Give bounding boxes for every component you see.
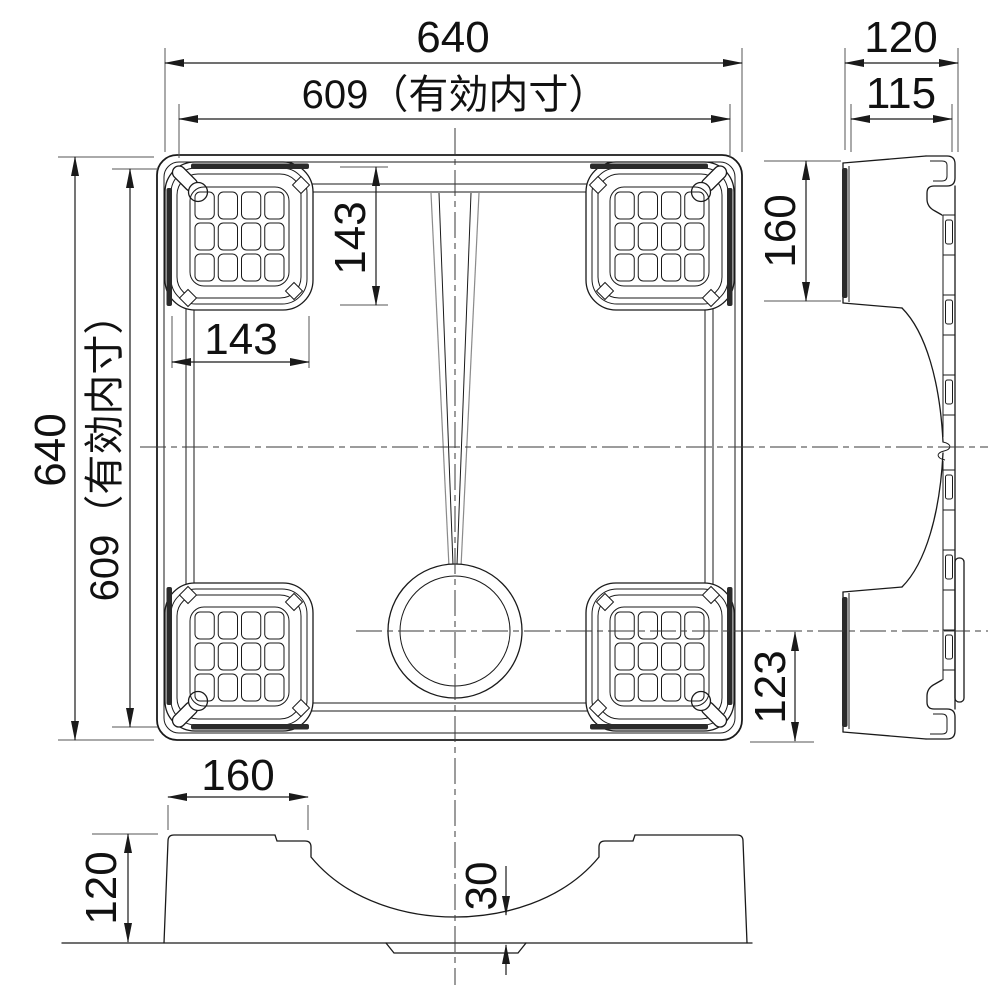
corner-pad-top-right [586, 162, 734, 310]
dim-label-side-top-width: 120 [864, 13, 937, 62]
corner-pad-bottom-right [586, 583, 734, 731]
dim-label-front-gap: 30 [457, 862, 506, 911]
front-view [62, 835, 752, 953]
dim-label-side-top-inner: 115 [866, 69, 936, 118]
dim-label-left-inner-height: 609（有効内寸） [83, 295, 127, 602]
dim-label-top-inner-width: 609（有効内寸） [302, 73, 609, 117]
corner-pad-bottom-left [165, 583, 313, 731]
dim-label-pad-height: 143 [326, 201, 375, 274]
dim-label-drain-offset: 123 [746, 650, 795, 723]
dimensions: 640 609（有効内寸） 120 115 160 143 143 640 60… [26, 13, 958, 975]
side-foot-pad [955, 558, 964, 702]
front-drain-recess [386, 943, 526, 953]
drawing-page: 640 609（有効内寸） 120 115 160 143 143 640 60… [0, 0, 1000, 1000]
dim-label-side-pad-height: 160 [756, 194, 805, 267]
dim-label-left-height: 640 [26, 413, 75, 486]
dim-label-pad-width: 143 [204, 315, 277, 364]
technical-drawing: 640 609（有効内寸） 120 115 160 143 143 640 60… [0, 0, 1000, 1000]
dim-label-top-width: 640 [416, 13, 489, 62]
dim-label-front-pad-width: 160 [201, 751, 274, 800]
corner-pad-top-left [165, 162, 313, 310]
dim-label-front-height: 120 [77, 851, 126, 924]
